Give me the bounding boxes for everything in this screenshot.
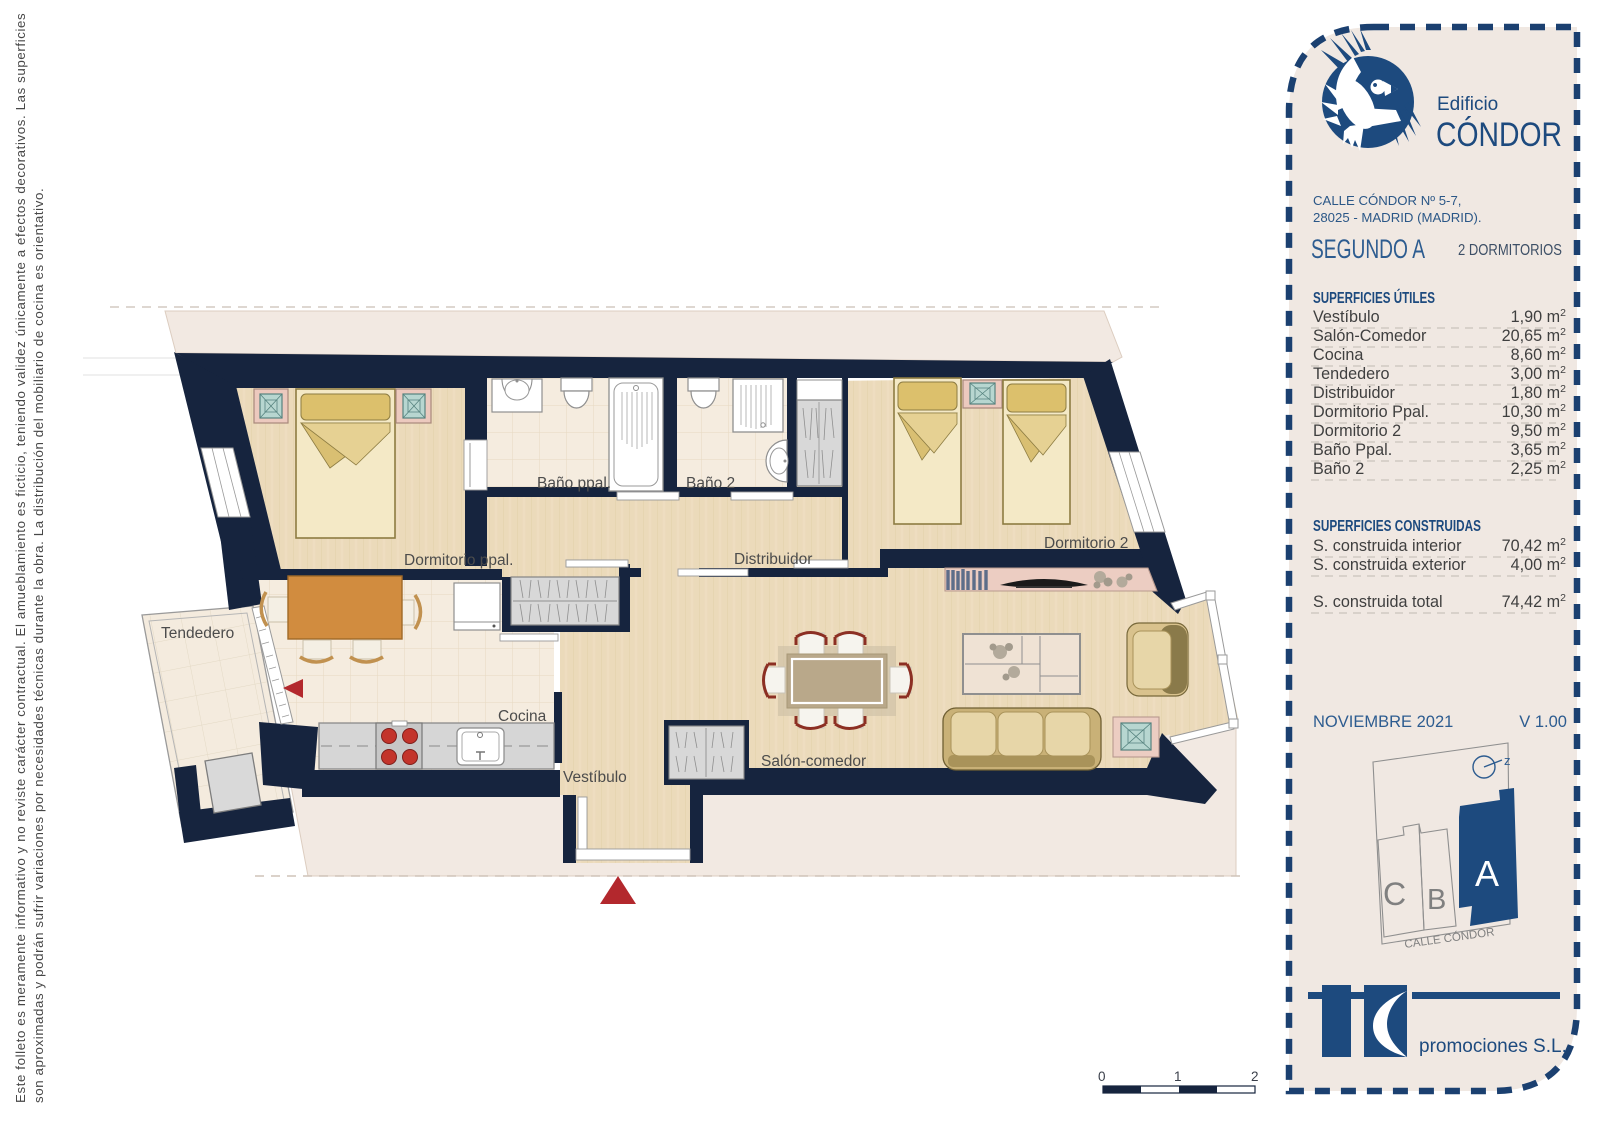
svg-text:CALLE CÓNDOR Nº 5-7,: CALLE CÓNDOR Nº 5-7, xyxy=(1313,193,1461,208)
svg-text:SUPERFICIES CONSTRUIDAS: SUPERFICIES CONSTRUIDAS xyxy=(1313,518,1481,535)
svg-text:Dormitorio ppal.: Dormitorio ppal. xyxy=(404,552,513,569)
svg-text:SUPERFICIES ÚTILES: SUPERFICIES ÚTILES xyxy=(1313,289,1435,307)
svg-text:74,42 m2: 74,42 m2 xyxy=(1502,592,1567,611)
svg-text:C: C xyxy=(1383,876,1406,912)
svg-text:1,90 m2: 1,90 m2 xyxy=(1511,307,1567,326)
svg-text:z: z xyxy=(1504,753,1511,768)
svg-text:3,65 m2: 3,65 m2 xyxy=(1511,440,1567,459)
svg-text:Salón-comedor: Salón-comedor xyxy=(761,753,866,770)
svg-text:Salón-Comedor: Salón-Comedor xyxy=(1313,327,1427,345)
svg-text:A: A xyxy=(1475,853,1499,894)
svg-text:1,80 m2: 1,80 m2 xyxy=(1511,383,1567,402)
svg-text:Dormitorio Ppal.: Dormitorio Ppal. xyxy=(1313,403,1429,421)
svg-text:S. construida interior: S. construida interior xyxy=(1313,537,1462,555)
svg-text:SEGUNDO A: SEGUNDO A xyxy=(1311,234,1425,264)
svg-text:3,00 m2: 3,00 m2 xyxy=(1511,364,1567,383)
svg-text:9,50 m2: 9,50 m2 xyxy=(1511,421,1567,440)
svg-text:son aproximadas y podrán sufri: son aproximadas y podrán sufrir variacio… xyxy=(31,188,46,1103)
svg-text:Dormitorio 2: Dormitorio 2 xyxy=(1313,422,1401,440)
svg-text:Dormitorio 2: Dormitorio 2 xyxy=(1044,535,1128,552)
svg-text:Baño ppal.: Baño ppal. xyxy=(537,475,611,492)
svg-text:Vestíbulo: Vestíbulo xyxy=(1313,308,1380,326)
svg-text:Vestíbulo: Vestíbulo xyxy=(563,769,627,786)
svg-text:S. construida exterior: S. construida exterior xyxy=(1313,556,1467,574)
svg-text:V 1.00: V 1.00 xyxy=(1519,713,1567,731)
svg-text:Este folleto es meramente info: Este folleto es meramente informativo y … xyxy=(13,13,28,1103)
svg-text:10,30 m2: 10,30 m2 xyxy=(1502,402,1567,421)
svg-text:Distribuidor: Distribuidor xyxy=(734,551,812,568)
svg-text:20,65 m2: 20,65 m2 xyxy=(1502,326,1567,345)
svg-text:Edificio: Edificio xyxy=(1437,94,1498,115)
svg-text:1: 1 xyxy=(1174,1069,1182,1084)
svg-text:Cocina: Cocina xyxy=(498,708,547,725)
svg-text:promociones S.L.: promociones S.L. xyxy=(1419,1036,1567,1057)
svg-text:4,00 m2: 4,00 m2 xyxy=(1511,555,1567,574)
svg-text:70,42 m2: 70,42 m2 xyxy=(1502,536,1567,555)
svg-text:CÓNDOR: CÓNDOR xyxy=(1436,116,1562,154)
svg-text:2,25 m2: 2,25 m2 xyxy=(1511,459,1567,478)
svg-text:28025 - MADRID (MADRID).: 28025 - MADRID (MADRID). xyxy=(1313,210,1482,225)
svg-text:Baño 2: Baño 2 xyxy=(686,475,735,492)
svg-text:2 DORMITORIOS: 2 DORMITORIOS xyxy=(1458,242,1562,259)
svg-text:8,60 m2: 8,60 m2 xyxy=(1511,345,1567,364)
svg-text:Tendedero: Tendedero xyxy=(1313,365,1390,383)
svg-text:NOVIEMBRE 2021: NOVIEMBRE 2021 xyxy=(1313,713,1453,731)
svg-text:0: 0 xyxy=(1098,1069,1106,1084)
svg-text:Distribuidor: Distribuidor xyxy=(1313,384,1395,402)
svg-text:2: 2 xyxy=(1251,1069,1259,1084)
svg-text:S. construida total: S. construida total xyxy=(1313,593,1443,611)
svg-text:Cocina: Cocina xyxy=(1313,346,1363,364)
svg-text:Baño Ppal.: Baño Ppal. xyxy=(1313,441,1392,459)
svg-text:Tendedero: Tendedero xyxy=(161,625,234,642)
svg-text:B: B xyxy=(1427,884,1446,916)
svg-text:Baño 2: Baño 2 xyxy=(1313,460,1364,478)
